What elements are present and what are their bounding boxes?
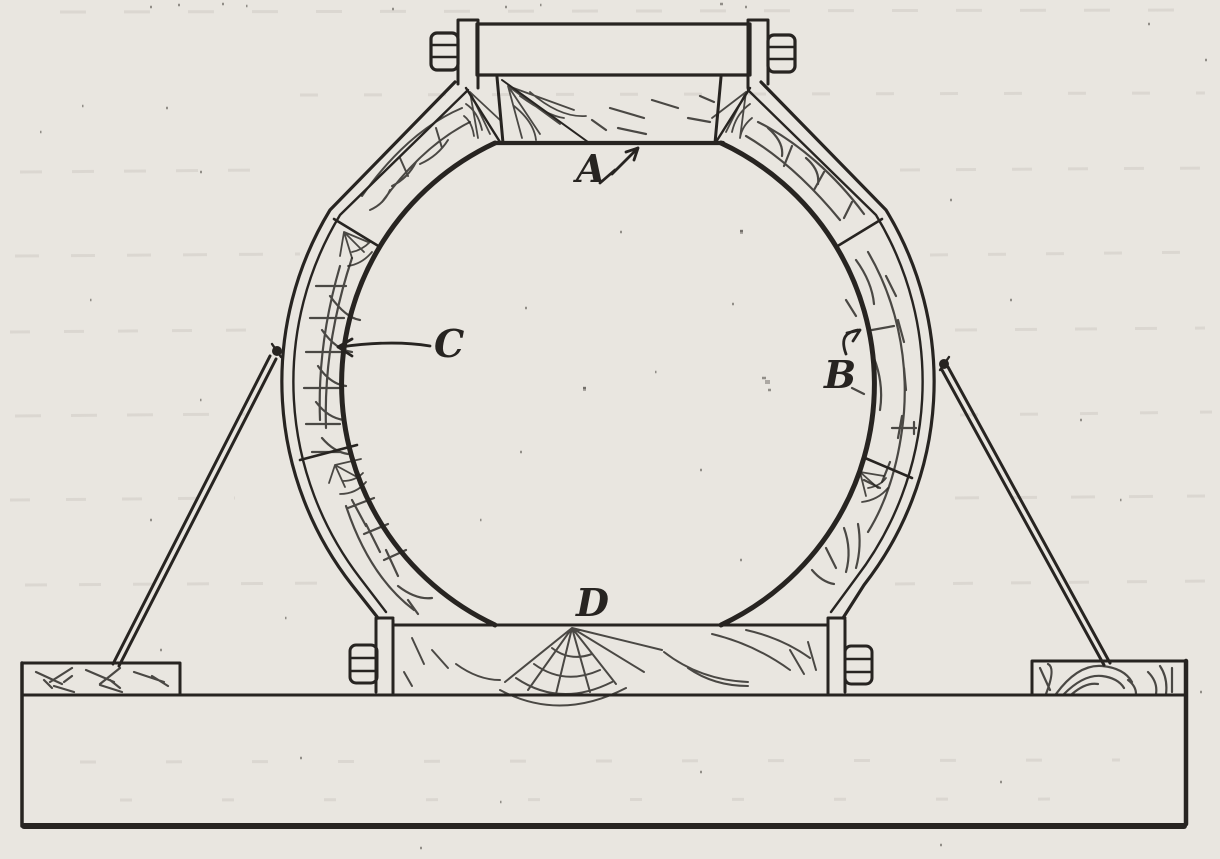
right-foot-block	[1032, 661, 1186, 695]
ring-outer-band	[282, 82, 934, 618]
label-b-arrow	[844, 330, 860, 354]
top-left-strap	[431, 20, 478, 88]
segment-joints	[300, 219, 912, 478]
clamp-bar	[477, 24, 750, 75]
inner-circle-left	[342, 143, 495, 625]
keystone-block-a	[464, 77, 752, 143]
paper-texture	[10, 4, 1212, 848]
left-brace	[113, 344, 282, 666]
label-a-arrow	[600, 148, 638, 183]
bottom-left-bolt	[350, 645, 377, 683]
bottom-right-bolt	[845, 646, 872, 684]
bottom-right-strap	[828, 618, 872, 692]
bottom-block	[350, 618, 872, 706]
label-c-arrow	[338, 339, 430, 356]
wood-form-ring-diagram: A B C D	[0, 0, 1220, 859]
scanned-figure-page: A B C D	[0, 0, 1220, 859]
left-foot-block	[22, 663, 180, 694]
lower-left-segment-grain	[329, 459, 432, 614]
right-brace	[939, 357, 1110, 665]
figure-labels: A B C D	[338, 146, 860, 625]
bottom-left-strap	[350, 618, 393, 692]
label-b: B	[823, 352, 856, 397]
top-right-bolt	[768, 35, 795, 72]
label-c: C	[434, 321, 464, 366]
top-left-bolt	[431, 33, 458, 70]
top-clamp	[431, 20, 795, 143]
top-right-strap	[748, 20, 795, 88]
label-d: D	[575, 580, 609, 625]
